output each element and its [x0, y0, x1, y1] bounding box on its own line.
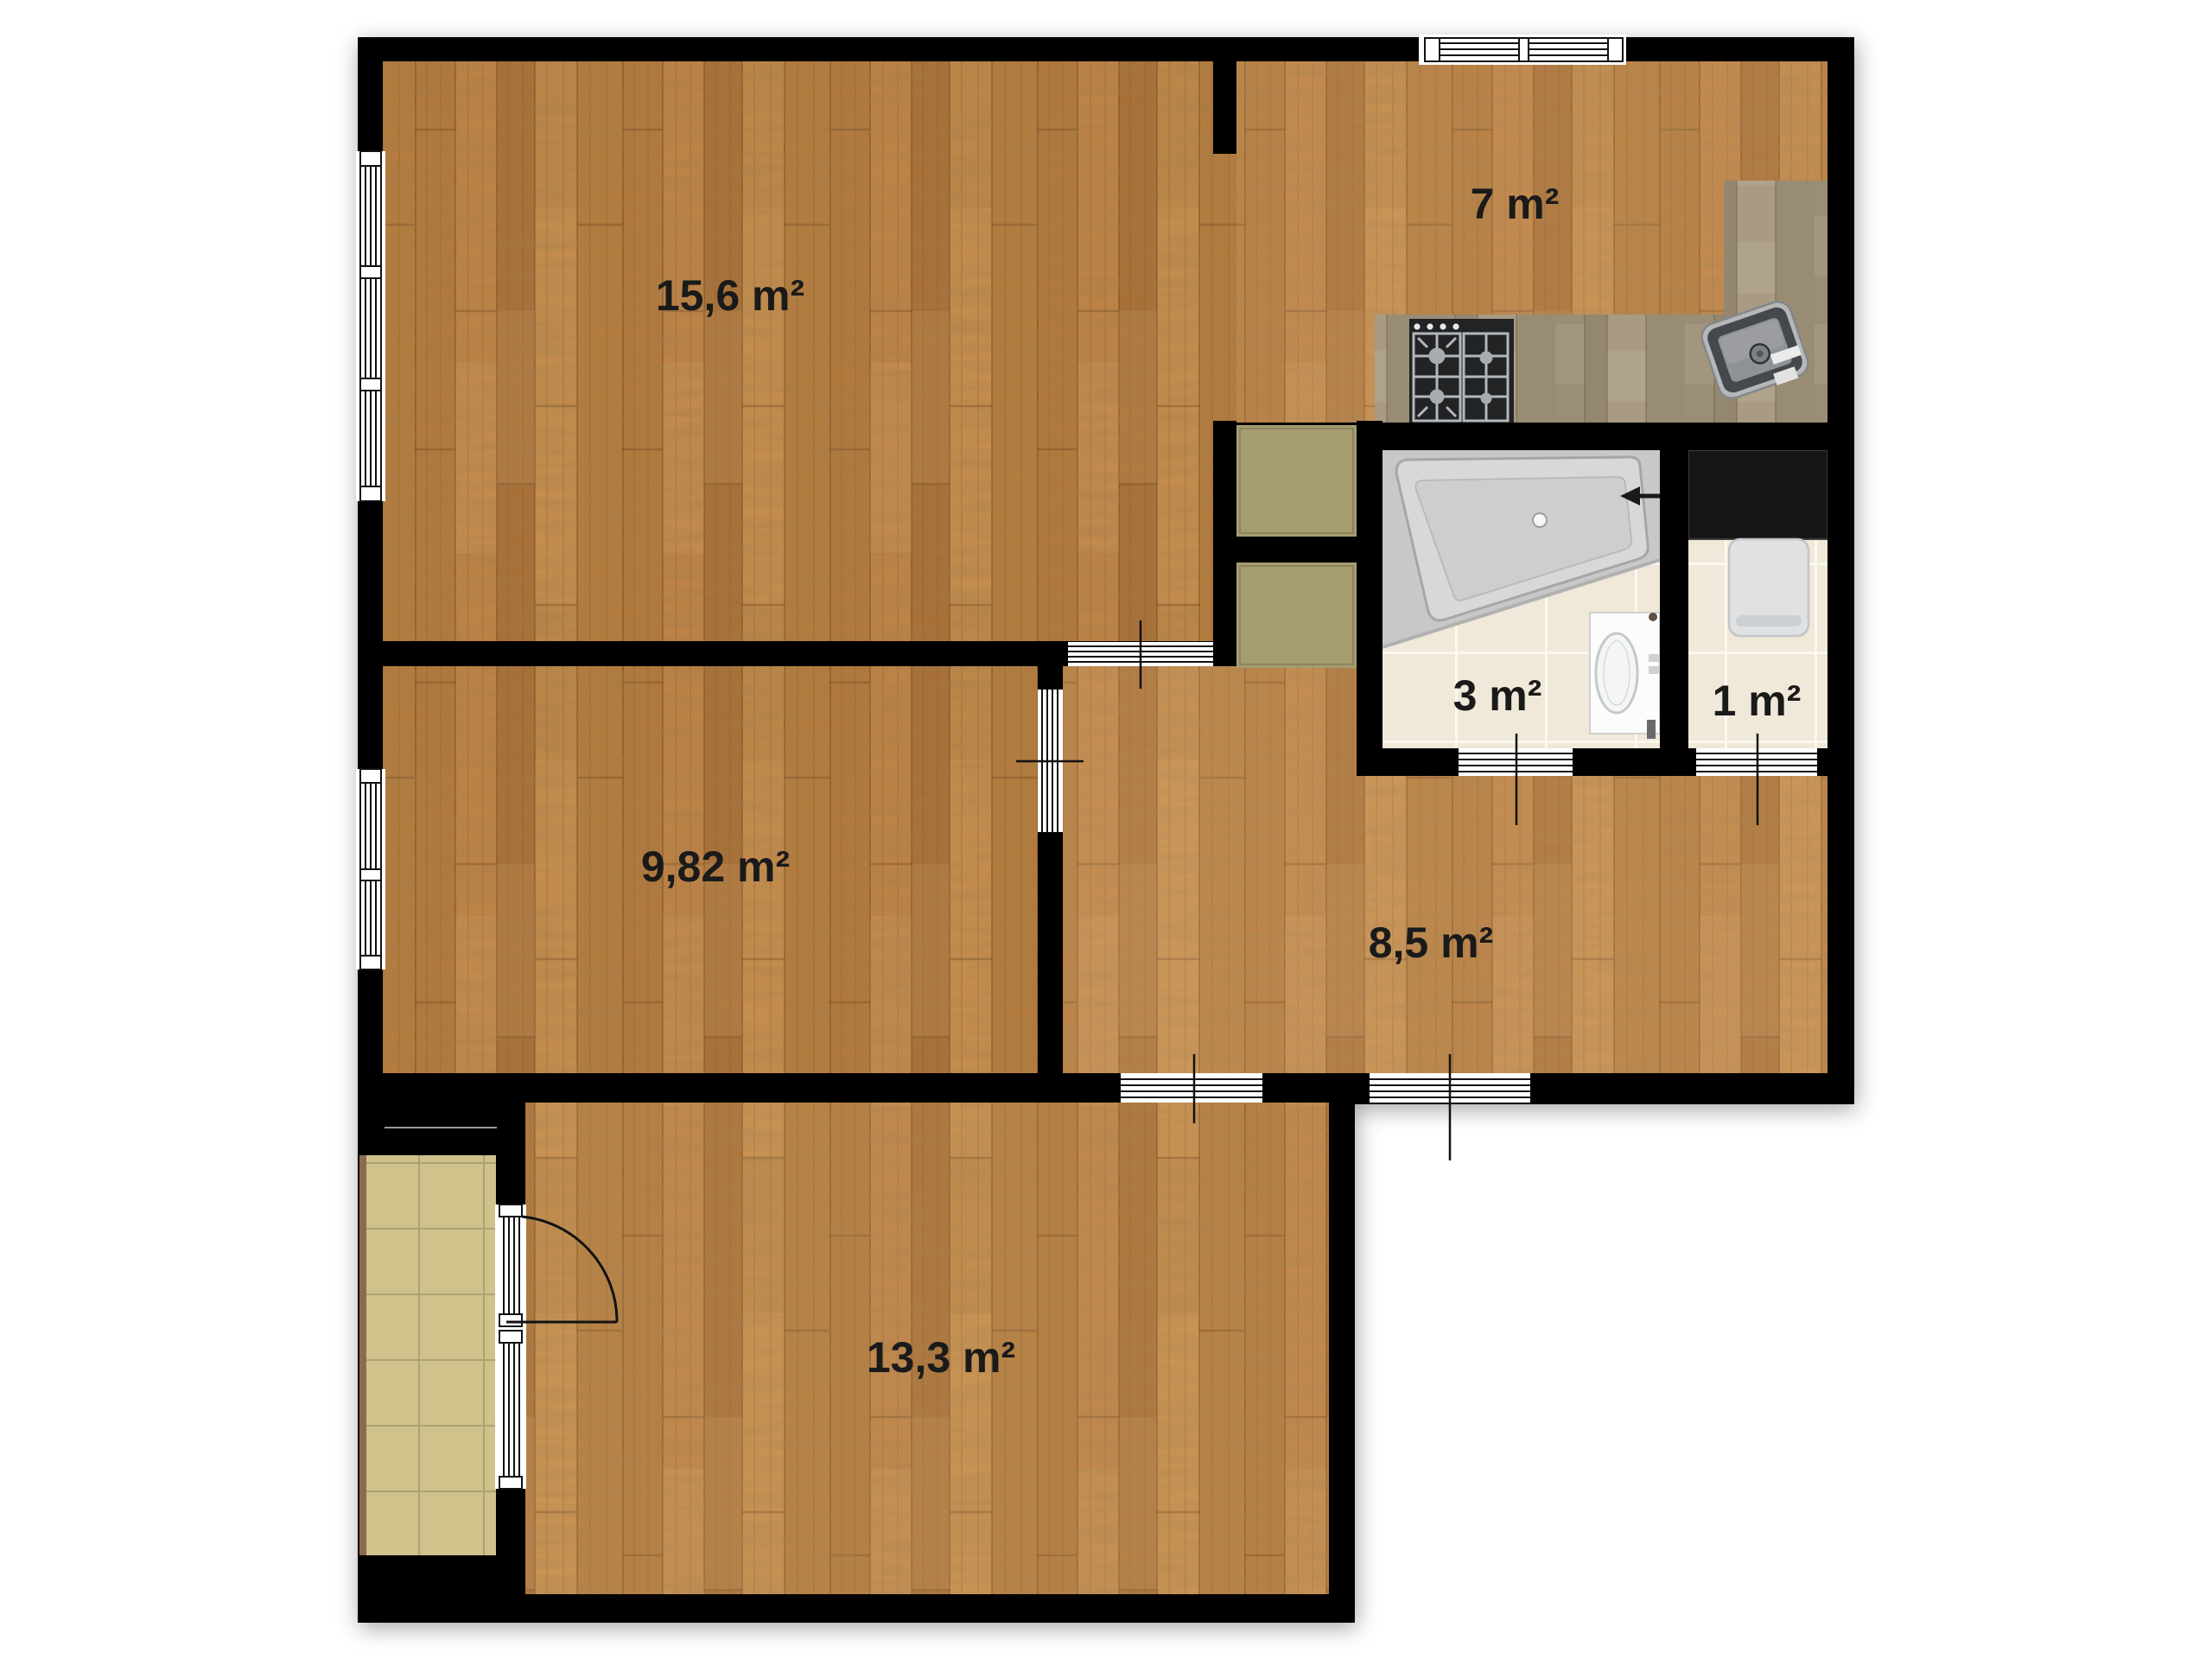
svg-text:3 m²: 3 m²	[1453, 671, 1542, 720]
svg-text:7 m²: 7 m²	[1471, 180, 1560, 228]
svg-text:15,6 m²: 15,6 m²	[656, 271, 804, 320]
svg-text:1 m²: 1 m²	[1713, 677, 1802, 725]
svg-text:13,3 m²: 13,3 m²	[867, 1333, 1015, 1382]
svg-text:8,5 m²: 8,5 m²	[1369, 918, 1494, 967]
svg-text:9,82 m²: 9,82 m²	[641, 842, 790, 891]
